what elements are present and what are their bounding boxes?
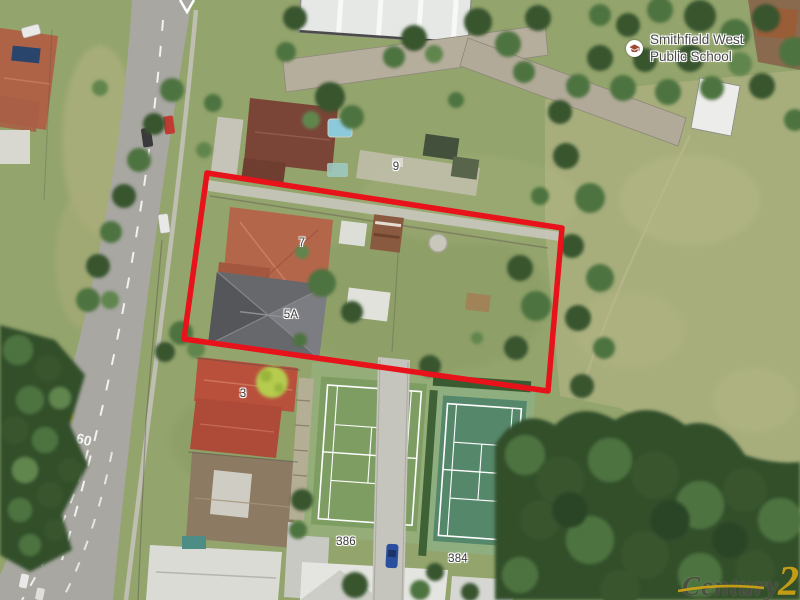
shed-teal <box>182 536 206 549</box>
garage-white <box>339 220 368 246</box>
house-number-384: 384 <box>448 553 468 565</box>
tree-lime <box>256 366 288 398</box>
school-label: Smithfield West Public School <box>626 31 744 65</box>
school-name-line1: Smithfield West <box>650 32 744 47</box>
driveway-386 <box>372 357 410 600</box>
solar-panels <box>11 46 40 64</box>
house-number-5a: 5A <box>284 309 298 321</box>
house-number-7: 7 <box>299 237 306 249</box>
cubby-structure <box>465 293 491 313</box>
trampoline <box>429 234 447 252</box>
aerial-map: 60 <box>0 0 800 600</box>
house-number-3: 3 <box>240 388 247 400</box>
shed-rusty <box>370 214 404 252</box>
house-1-roof <box>186 452 298 548</box>
school-icon <box>626 40 643 57</box>
school-name-line2: Public School <box>650 49 732 64</box>
satellite-imagery: 60 <box>0 0 800 600</box>
tennis-court-left <box>300 362 438 544</box>
graduation-cap-glyph <box>629 43 640 54</box>
school-label-text: Smithfield West Public School <box>650 31 744 65</box>
shed-dark <box>423 134 460 161</box>
house-number-386: 386 <box>336 536 356 548</box>
house-number-9: 9 <box>393 161 400 173</box>
